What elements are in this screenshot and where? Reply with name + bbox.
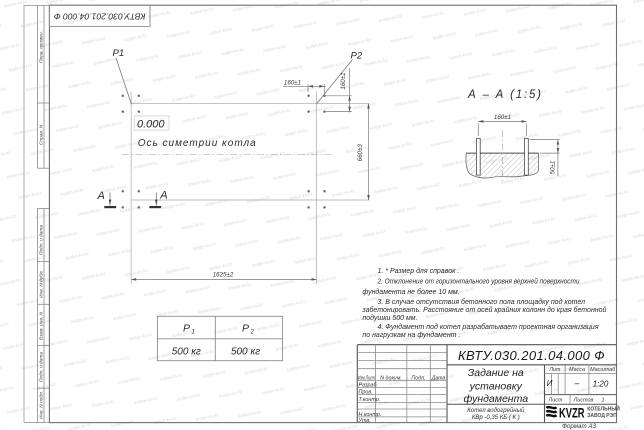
svg-text:Взам. инв. N: Взам. инв. N	[38, 312, 44, 340]
svg-text:660±3: 660±3	[357, 144, 364, 162]
svg-text:Листов: Листов	[573, 397, 594, 403]
svg-text:Инв. N подл.: Инв. N подл.	[38, 391, 44, 419]
svg-text:0.000: 0.000	[137, 119, 165, 131]
svg-text:Ось симетрии котла: Ось симетрии котла	[138, 138, 257, 149]
svg-text:Котел водогрейный: Котел водогрейный	[467, 407, 525, 414]
svg-text:160±1: 160±1	[340, 72, 347, 89]
svg-text:1: 1	[192, 330, 195, 336]
svg-text:установку: установку	[469, 380, 523, 392]
svg-text:Т.контр.: Т.контр.	[359, 397, 381, 403]
svg-text:P1: P1	[113, 48, 125, 59]
svg-text:Формат А3: Формат А3	[562, 423, 596, 430]
svg-text:Лит: Лит	[548, 367, 561, 373]
svg-text:Утв.: Утв.	[358, 418, 371, 424]
svg-text:1. * Размер для справок .: 1. * Размер для справок .	[378, 267, 460, 275]
svg-text:КВТУ.030.201.04.000 Ф: КВТУ.030.201.04.000 Ф	[458, 348, 605, 363]
svg-text:N докум.: N докум.	[380, 376, 402, 382]
svg-text:КОТЕЛЬНЫЙ: КОТЕЛЬНЫЙ	[587, 405, 620, 413]
svg-text:2: 2	[250, 330, 255, 336]
svg-text:Масса: Масса	[569, 367, 585, 373]
svg-text:Справ. N: Справ. N	[38, 124, 44, 145]
svg-text:забетонировать. Расстояние от: забетонировать. Расстояние от осей крайн…	[361, 306, 606, 314]
svg-text:Разраб.: Разраб.	[359, 382, 379, 388]
svg-text:500 кг: 500 кг	[172, 346, 201, 357]
svg-text:Масштаб: Масштаб	[590, 367, 616, 373]
svg-text:Задание на: Задание на	[468, 367, 524, 379]
svg-text:2. Отклонение от горизонтально: 2. Отклонение от горизонтального уровня …	[377, 278, 580, 286]
svg-text:А: А	[97, 190, 105, 202]
svg-text:А – А (1:5): А – А (1:5)	[467, 89, 543, 101]
svg-text:4. Фундамент под котел разраба: 4. Фундамент под котел разрабатывает про…	[378, 323, 599, 331]
svg-text:50±1: 50±1	[550, 161, 557, 175]
svg-text:Подп. и дата: Подп. и дата	[38, 352, 44, 382]
svg-text:P: P	[183, 323, 190, 335]
svg-text:1625±2: 1625±2	[213, 272, 234, 279]
svg-text:КВр -0,35 КБ ( К ): КВр -0,35 КБ ( К )	[472, 415, 520, 421]
svg-text:И: И	[547, 379, 553, 388]
svg-text:160±1: 160±1	[284, 80, 301, 87]
svg-text:А: А	[159, 190, 167, 202]
svg-text:Изм.Лист: Изм.Лист	[358, 376, 375, 382]
svg-text:1: 1	[602, 397, 605, 403]
svg-text:1:20: 1:20	[593, 380, 609, 389]
svg-text:КВТУ.030.201.04.000 Ф: КВТУ.030.201.04.000 Ф	[54, 12, 146, 22]
svg-text:подушки 500 мм.: подушки 500 мм.	[362, 314, 417, 322]
svg-text:160±1: 160±1	[494, 114, 511, 121]
svg-text:ЗАВОД РЭП: ЗАВОД РЭП	[587, 413, 617, 419]
svg-text:500 кг: 500 кг	[231, 346, 260, 357]
svg-text:фундамента: фундамента	[464, 393, 529, 405]
svg-text:Подп.: Подп.	[411, 376, 425, 382]
svg-text:–: –	[574, 379, 580, 388]
svg-text:P: P	[242, 323, 249, 335]
svg-text:Дата: Дата	[431, 376, 445, 382]
svg-text:по нагрузкам на фундамент .: по нагрузкам на фундамент .	[362, 331, 460, 339]
svg-text:3. В случае отсутствия бетонно: 3. В случае отсутствия бетонного пола пл…	[378, 298, 586, 306]
svg-text:Подп. и дата: Подп. и дата	[38, 225, 44, 255]
svg-text:Перв. примен.: Перв. примен.	[38, 31, 44, 63]
svg-text:Н.контр.: Н.контр.	[359, 412, 382, 418]
svg-text:Пров.: Пров.	[359, 390, 373, 396]
svg-text:фундамента не более 10 мм.: фундамента не более 10 мм.	[362, 288, 459, 296]
svg-text:Инв. N дубл.: Инв. N дубл.	[38, 270, 44, 298]
svg-text:Лист: Лист	[548, 397, 563, 403]
svg-text:KVZR: KVZR	[559, 404, 585, 420]
